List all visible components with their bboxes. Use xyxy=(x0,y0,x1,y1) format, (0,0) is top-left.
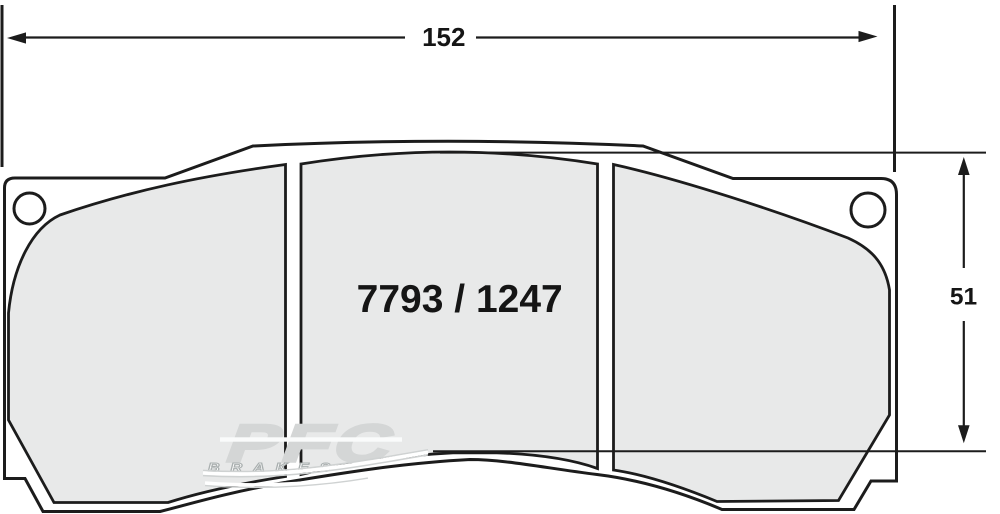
svg-text:7793 / 1247: 7793 / 1247 xyxy=(357,278,563,321)
svg-text:152: 152 xyxy=(422,22,465,52)
svg-text:51: 51 xyxy=(950,284,977,311)
